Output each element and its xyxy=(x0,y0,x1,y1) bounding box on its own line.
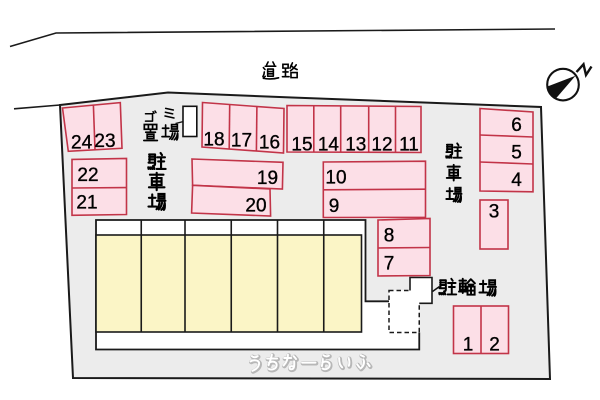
svg-text:12: 12 xyxy=(371,135,392,156)
svg-text:11: 11 xyxy=(399,135,419,156)
svg-text:10: 10 xyxy=(325,167,346,188)
svg-text:13: 13 xyxy=(345,135,366,156)
svg-text:4: 4 xyxy=(511,170,522,191)
svg-text:23: 23 xyxy=(94,131,115,152)
svg-text:20: 20 xyxy=(245,196,266,217)
svg-text:8: 8 xyxy=(384,225,395,246)
svg-text:22: 22 xyxy=(77,165,98,186)
svg-text:5: 5 xyxy=(511,143,522,164)
svg-text:18: 18 xyxy=(203,130,224,151)
svg-text:21: 21 xyxy=(76,193,97,214)
svg-text:9: 9 xyxy=(329,196,340,217)
svg-text:24: 24 xyxy=(71,133,93,154)
svg-text:14: 14 xyxy=(318,135,340,156)
svg-text:6: 6 xyxy=(511,115,522,136)
svg-text:19: 19 xyxy=(257,168,278,189)
svg-text:17: 17 xyxy=(231,131,252,152)
svg-text:1: 1 xyxy=(463,335,474,356)
svg-text:2: 2 xyxy=(489,335,500,356)
svg-text:15: 15 xyxy=(291,135,312,156)
svg-text:3: 3 xyxy=(489,202,500,223)
svg-text:16: 16 xyxy=(259,133,280,154)
svg-text:7: 7 xyxy=(384,253,395,274)
